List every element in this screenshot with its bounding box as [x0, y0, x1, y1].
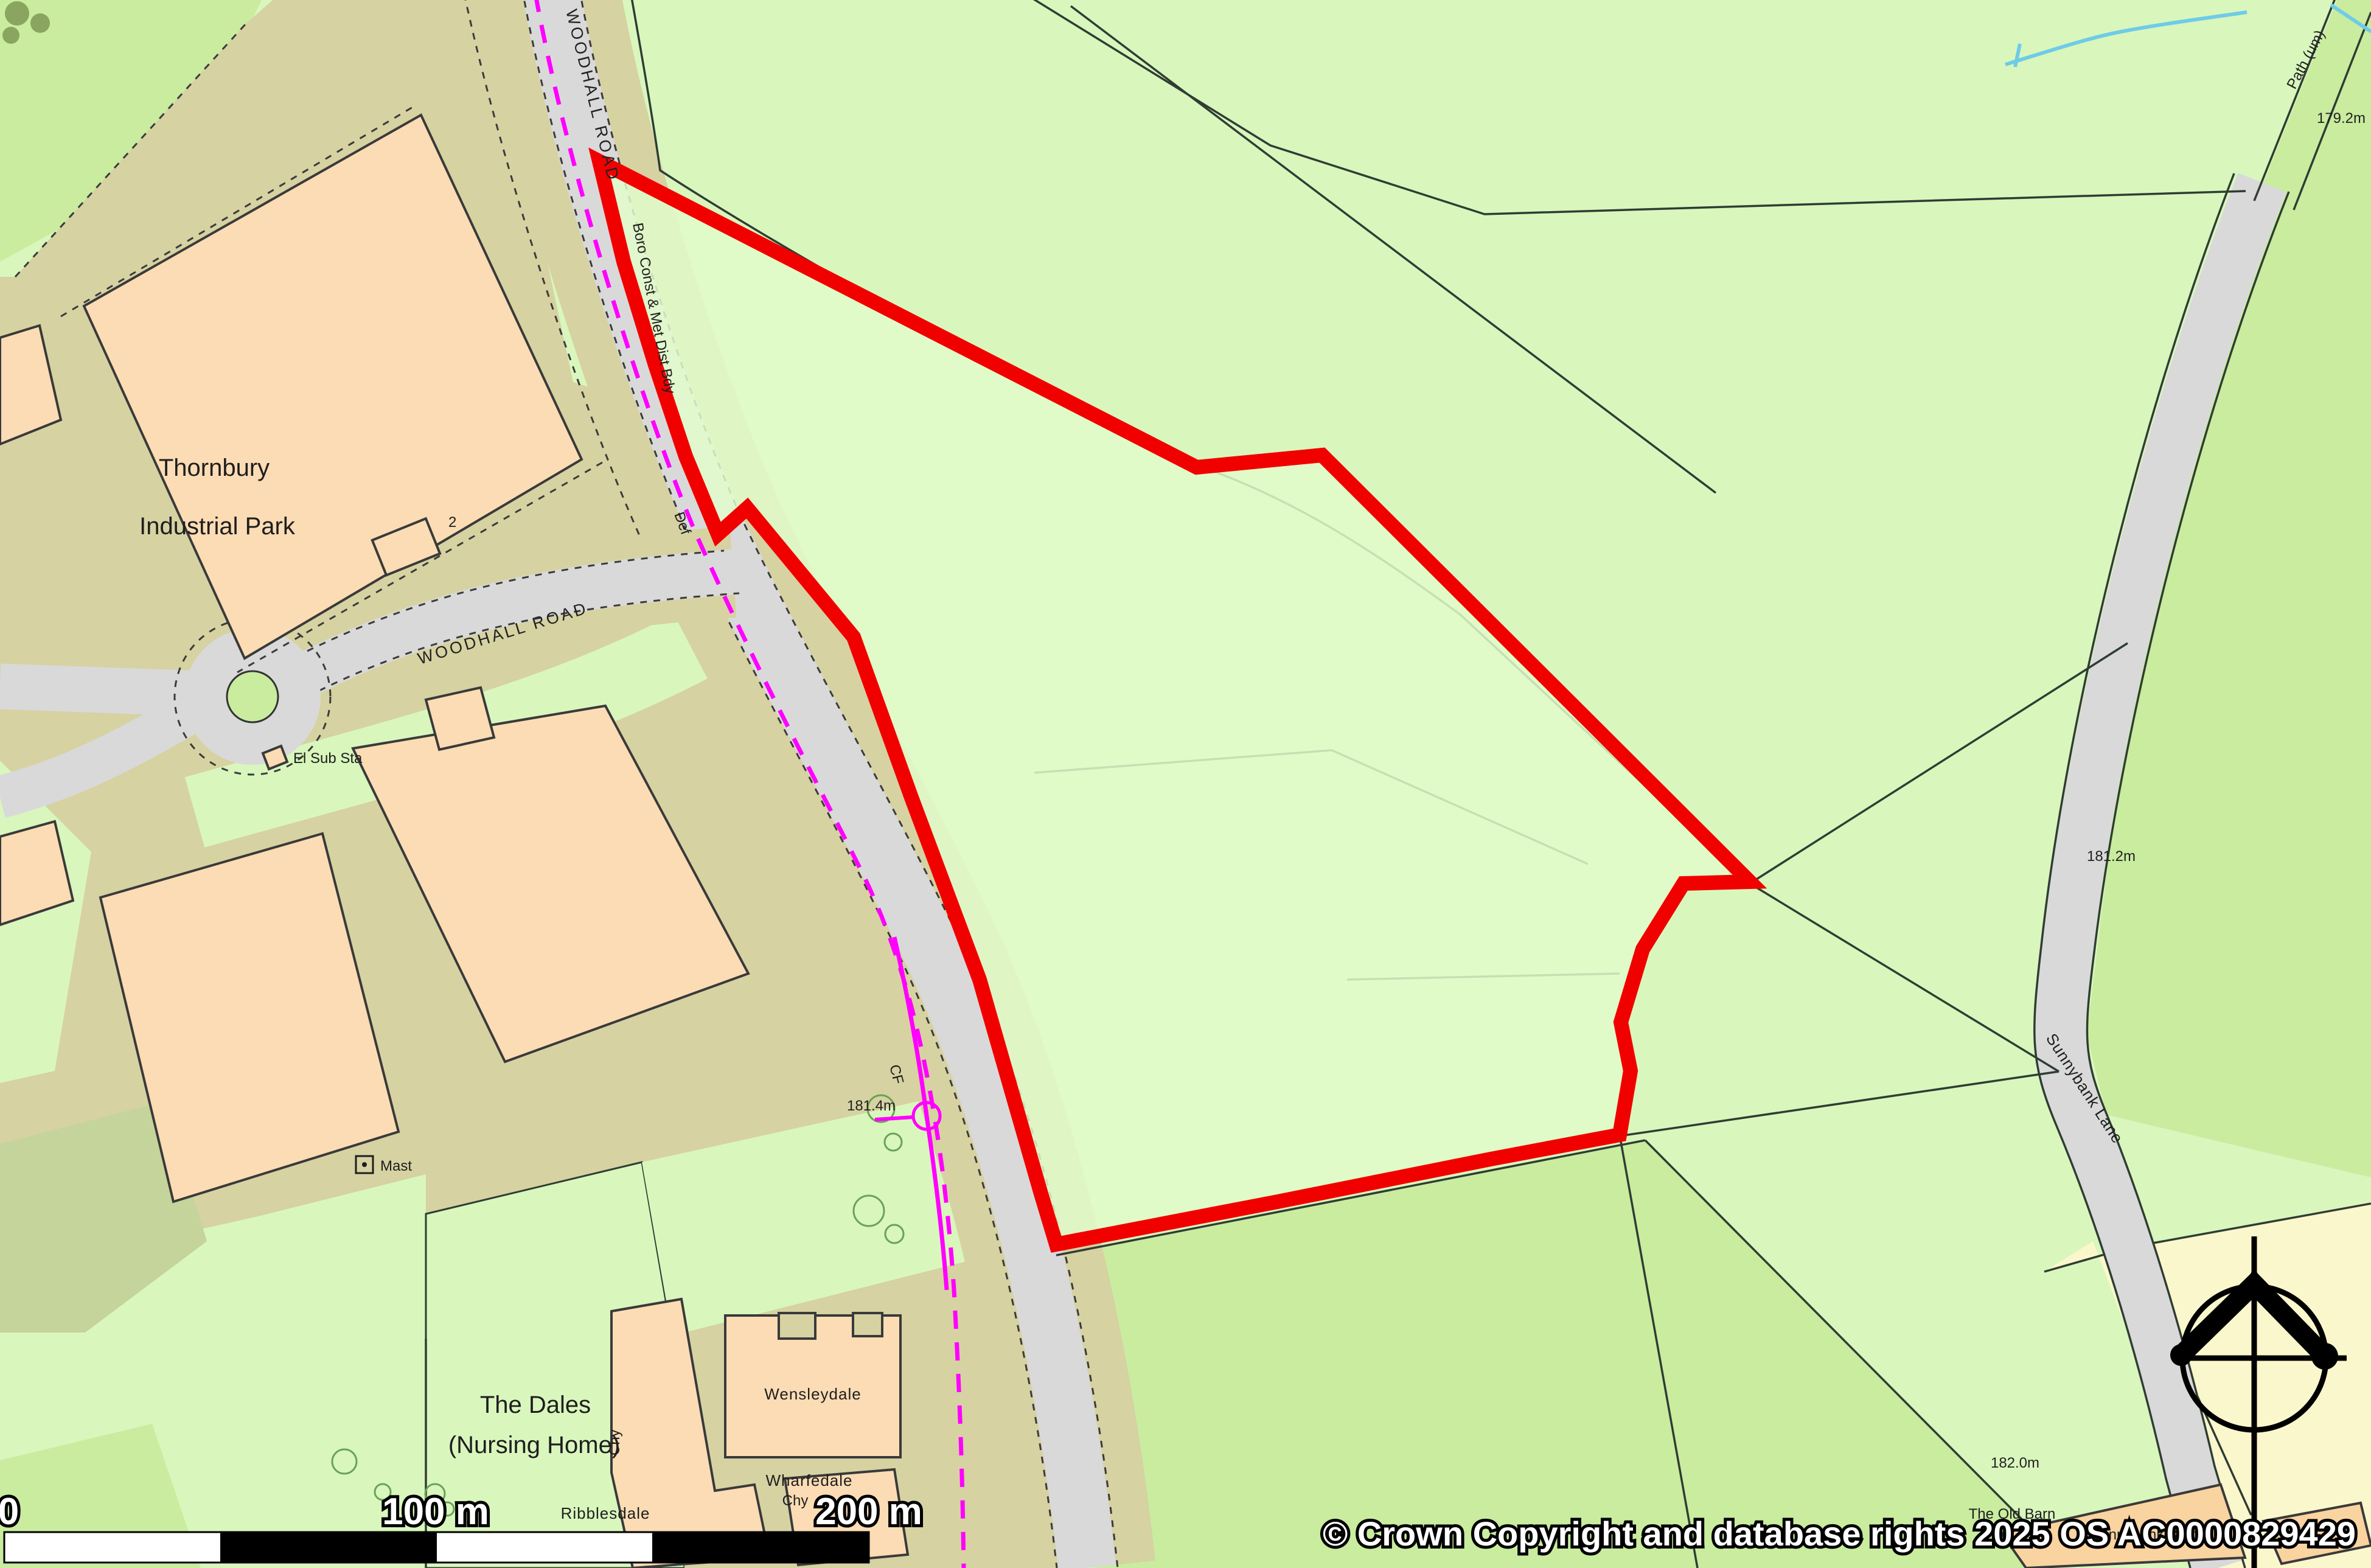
tree-blob — [2, 27, 19, 44]
scale-label-200: 200 m — [815, 1491, 922, 1533]
scale-label-100: 100 m — [382, 1491, 489, 1533]
map-canvas: WOODHALL ROAD WOODHALL ROAD Boro Const &… — [0, 0, 2371, 1568]
wharfedale-label: Wharfedale — [766, 1471, 853, 1490]
ribblesdale-label: Ribblesdale — [561, 1504, 650, 1522]
nursing-home-label-2: (Nursing Home) — [448, 1432, 620, 1458]
building-annex — [426, 688, 494, 750]
spot-height-182: 182.0m — [1991, 1455, 2039, 1471]
chy-label-2: Chy — [782, 1493, 809, 1509]
mast-label: Mast — [380, 1158, 412, 1174]
scale-bar-segment — [652, 1532, 869, 1563]
chy-label-1: Chy — [607, 1429, 623, 1455]
north-arrow-end — [2170, 1344, 2192, 1366]
west-road — [0, 686, 201, 694]
spot-height-181-4: 181.4m — [847, 1098, 896, 1114]
tree-blob — [30, 13, 50, 33]
copyright-text: © Crown Copyright and database rights 20… — [1323, 1514, 2356, 1553]
map-viewport: WOODHALL ROAD WOODHALL ROAD Boro Const &… — [0, 0, 2371, 1568]
industrial-park-label-2: Industrial Park — [139, 513, 296, 540]
scale-label-zero: 0 — [0, 1491, 19, 1533]
substation-label: El Sub Sta — [293, 750, 363, 767]
spot-height-181-2: 181.2m — [2087, 848, 2136, 865]
wensleydale-label: Wensleydale — [764, 1385, 861, 1403]
spot-height-179: 179.2m — [2317, 110, 2366, 127]
north-arrow-end — [2311, 1343, 2338, 1370]
roundabout-island — [227, 671, 278, 722]
building-notch — [853, 1313, 882, 1336]
building-notch — [779, 1313, 815, 1339]
tree-blob — [5, 1, 29, 26]
building-number-label: 2 — [448, 514, 456, 531]
industrial-park-label-1: Thornbury — [159, 455, 270, 481]
nursing-home-label-1: The Dales — [480, 1392, 591, 1418]
scale-bar-segment — [220, 1532, 437, 1563]
boundary-spur — [875, 1117, 913, 1120]
